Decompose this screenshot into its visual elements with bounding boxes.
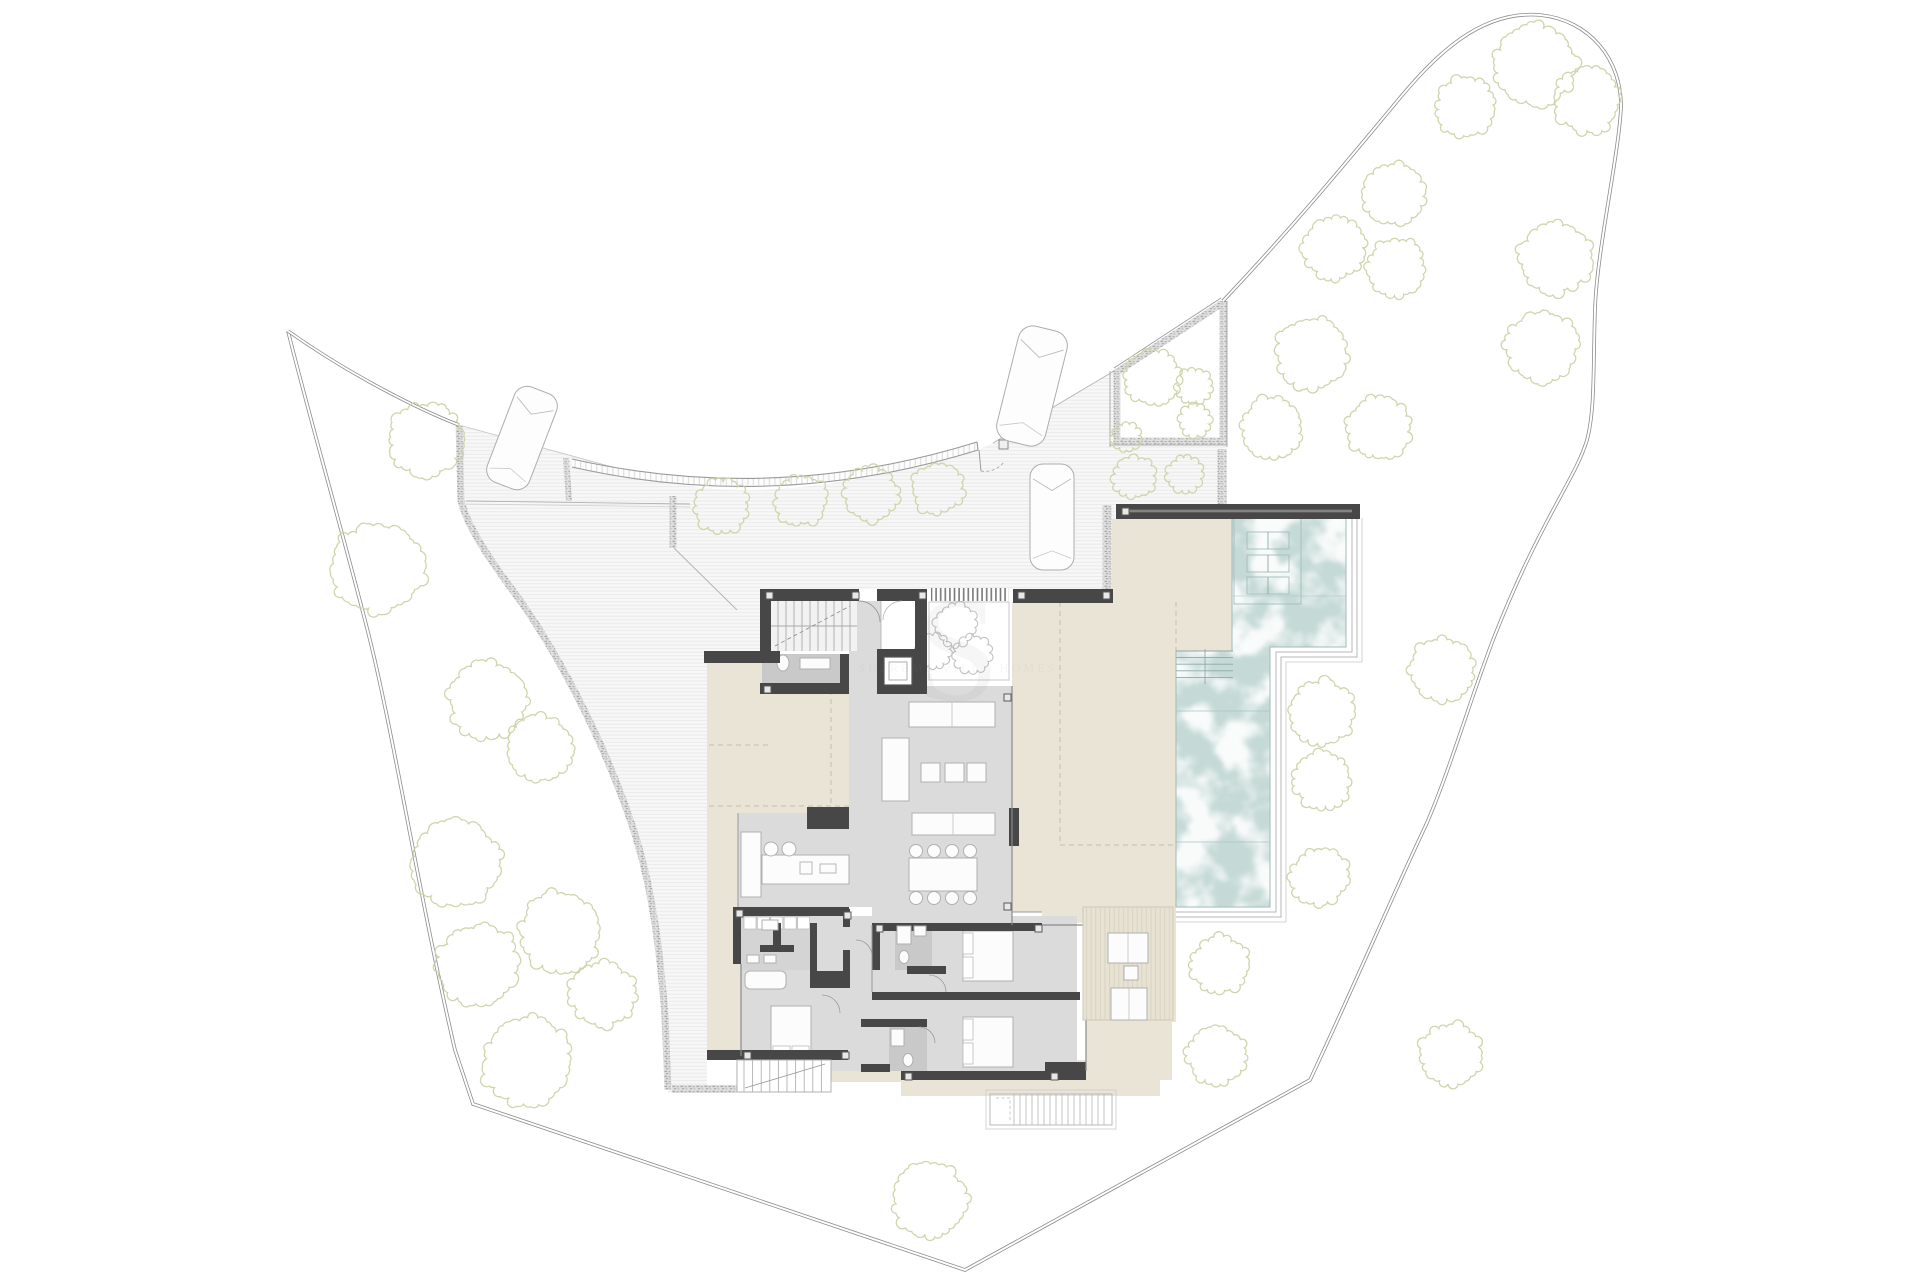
svg-text:SUPREME VILLA HOMES: SUPREME VILLA HOMES bbox=[858, 661, 1057, 675]
svg-text:S: S bbox=[916, 567, 999, 733]
